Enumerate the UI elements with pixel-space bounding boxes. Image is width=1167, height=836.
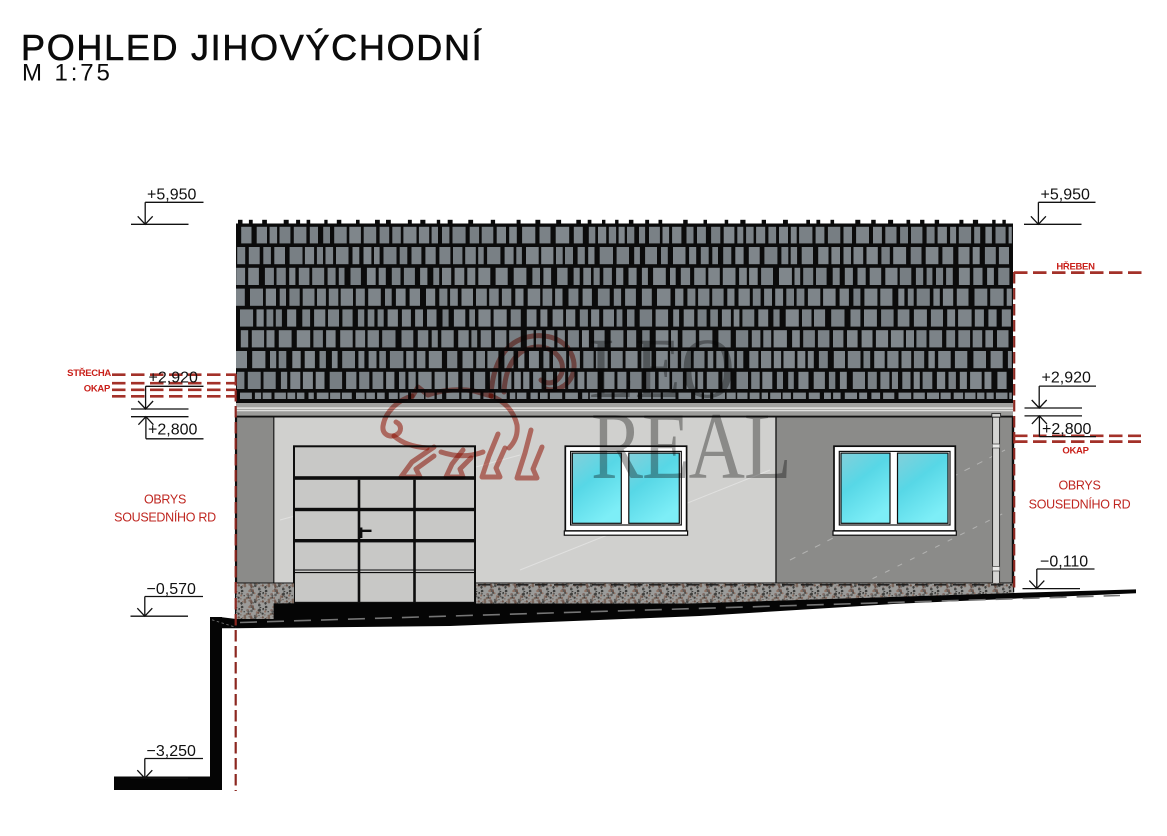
svg-text:OBRYS: OBRYS [1058,479,1100,493]
svg-text:−0,110: −0,110 [1040,554,1088,571]
svg-text:SOUSEDNÍHO RD: SOUSEDNÍHO RD [114,509,216,524]
svg-text:SOUSEDNÍHO RD: SOUSEDNÍHO RD [1029,496,1131,511]
svg-text:HŘEBEN: HŘEBEN [1056,260,1095,272]
svg-text:STŘECHA: STŘECHA [67,367,111,379]
svg-text:OKAP: OKAP [1062,446,1089,457]
svg-text:OBRYS: OBRYS [144,492,186,506]
svg-text:M 1:75: M 1:75 [22,60,113,87]
svg-text:+5,950: +5,950 [1041,187,1090,204]
svg-text:OKAP: OKAP [84,383,111,394]
svg-text:+2,920: +2,920 [1042,370,1091,387]
svg-text:−3,250: −3,250 [147,743,196,760]
svg-text:+2,920: +2,920 [149,370,198,387]
svg-text:+5,950: +5,950 [147,187,196,204]
svg-text:REAL: REAL [591,394,791,499]
svg-text:+2,800: +2,800 [148,422,197,439]
svg-text:+2,800: +2,800 [1042,421,1091,438]
svg-text:−0,570: −0,570 [147,581,196,598]
